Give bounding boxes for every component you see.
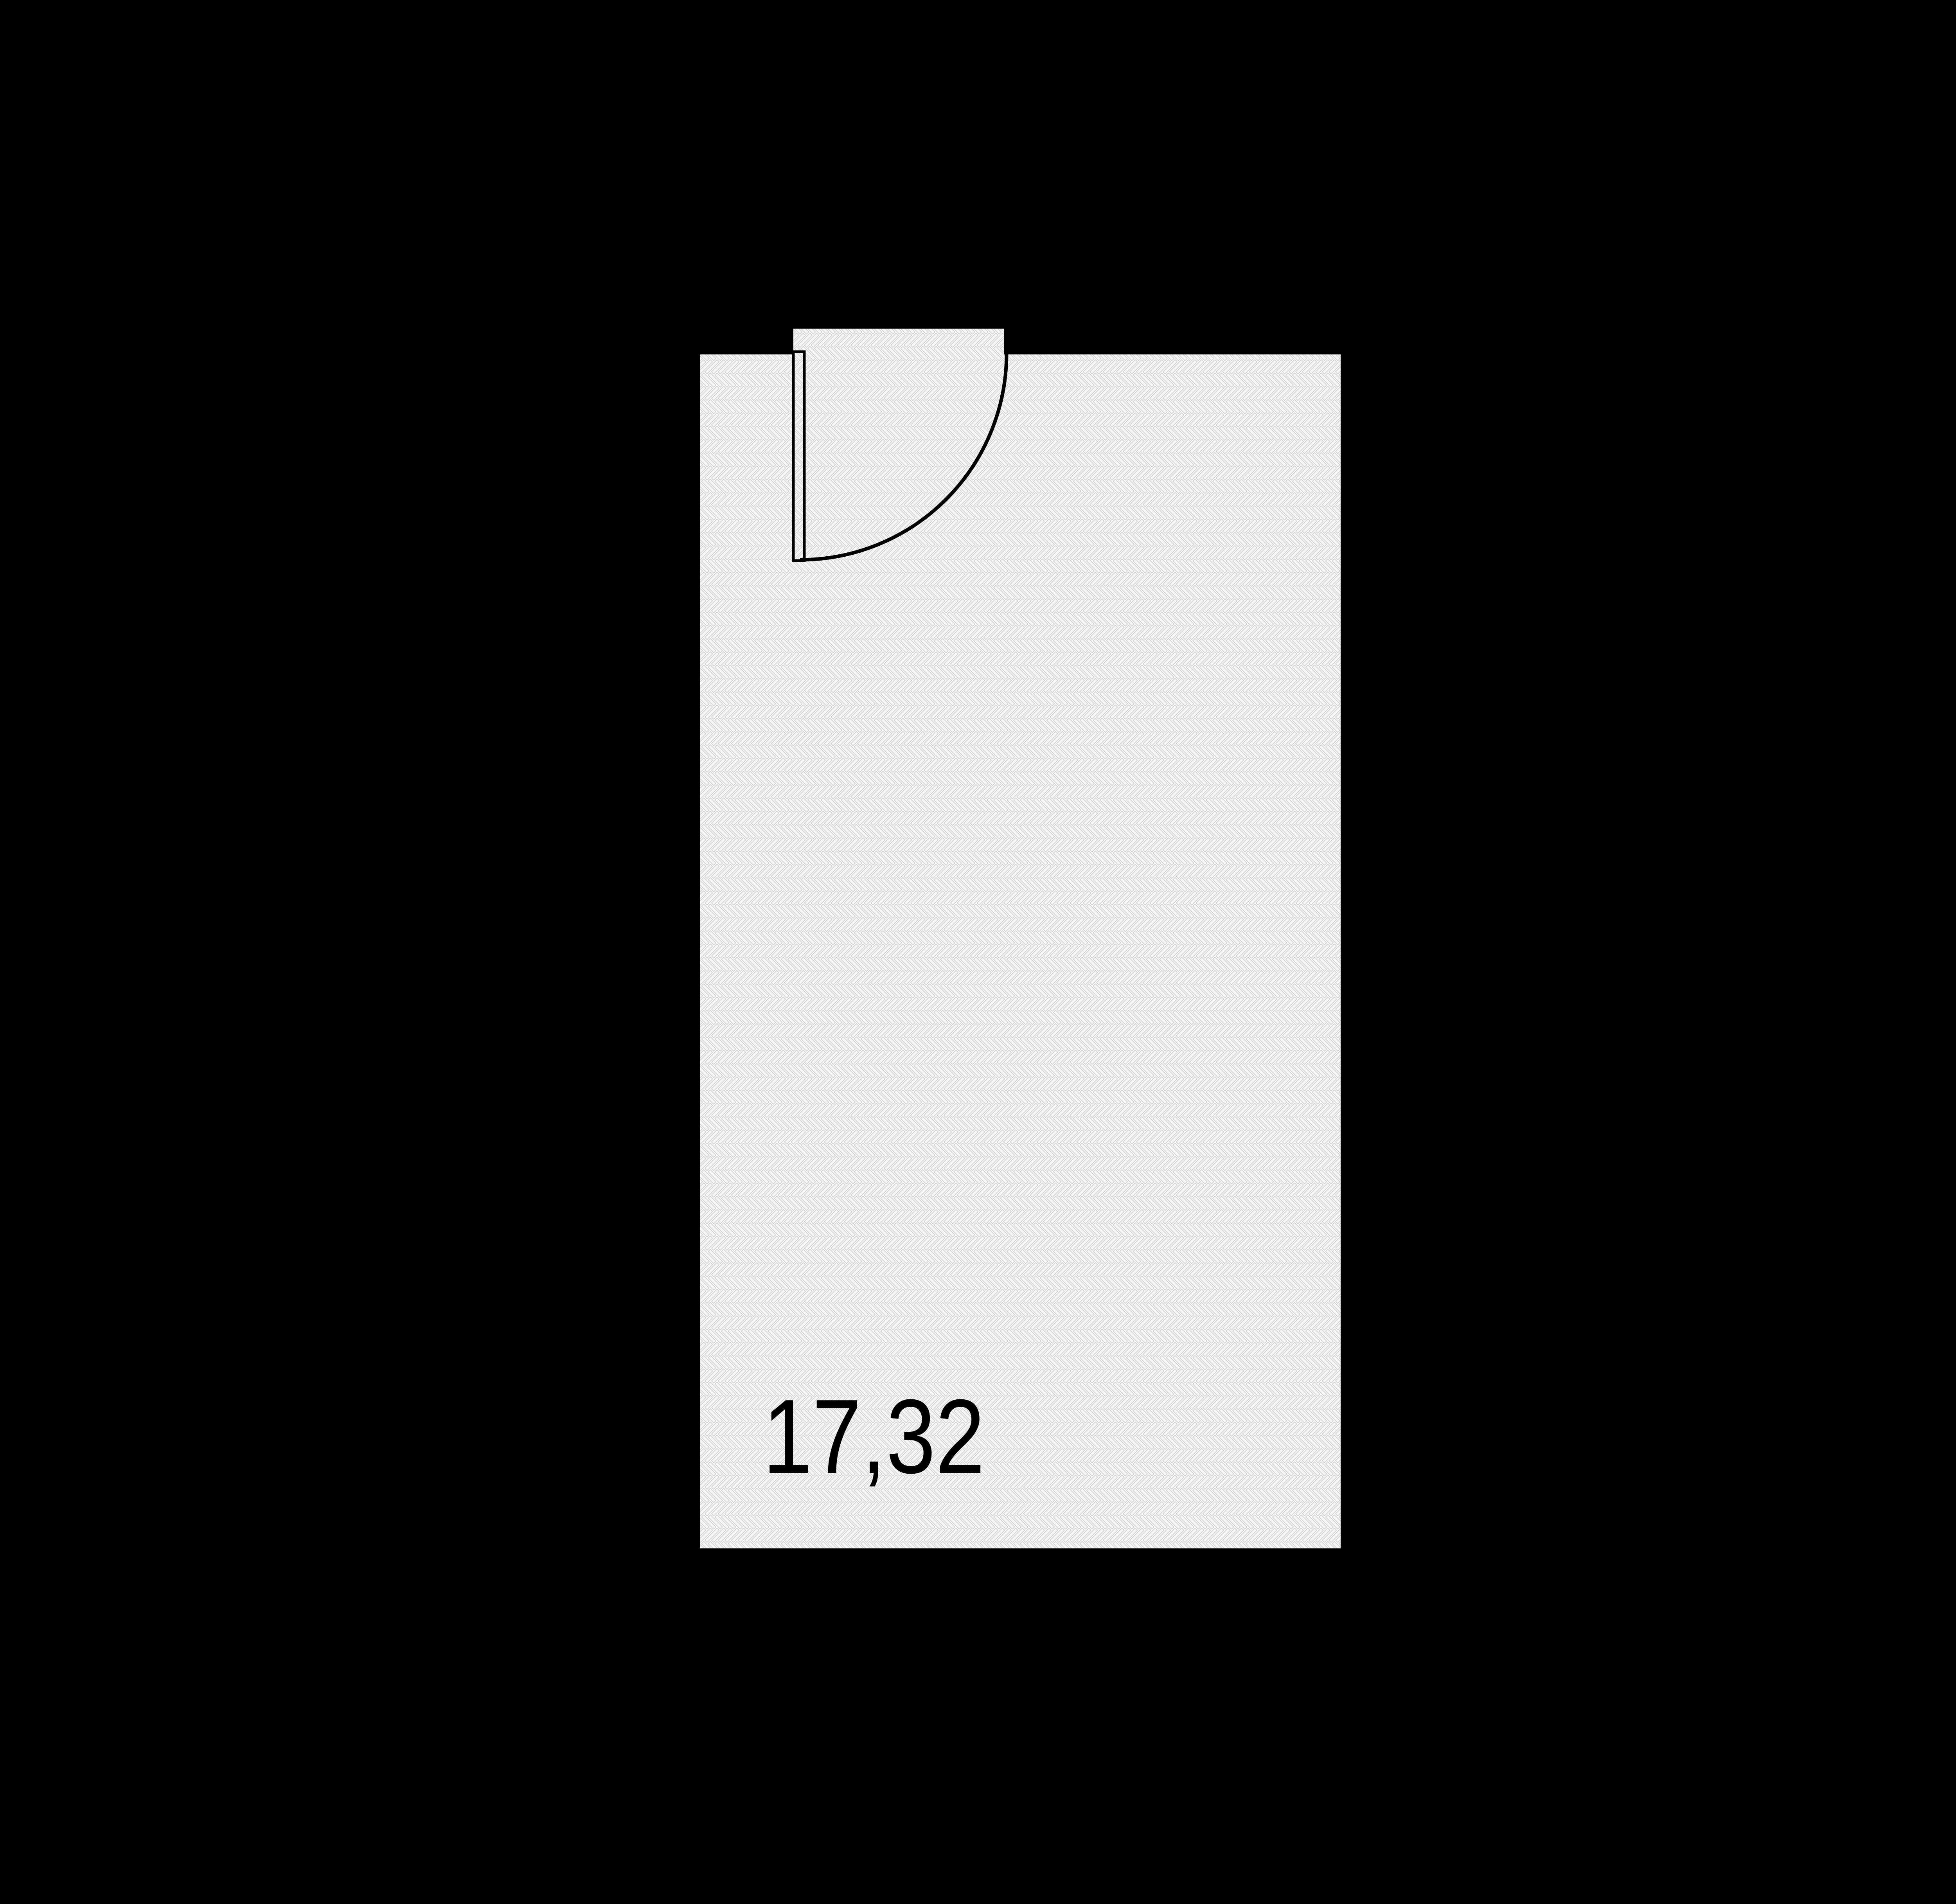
room-area-value: 17,32 (763, 1384, 985, 1490)
floorplan-canvas: 17,32 (0, 0, 1956, 1904)
room-area-label: 17,32 (763, 1384, 1027, 1490)
floorplan-drawing (0, 0, 1956, 1904)
room-floor-parquet (700, 329, 1341, 1548)
